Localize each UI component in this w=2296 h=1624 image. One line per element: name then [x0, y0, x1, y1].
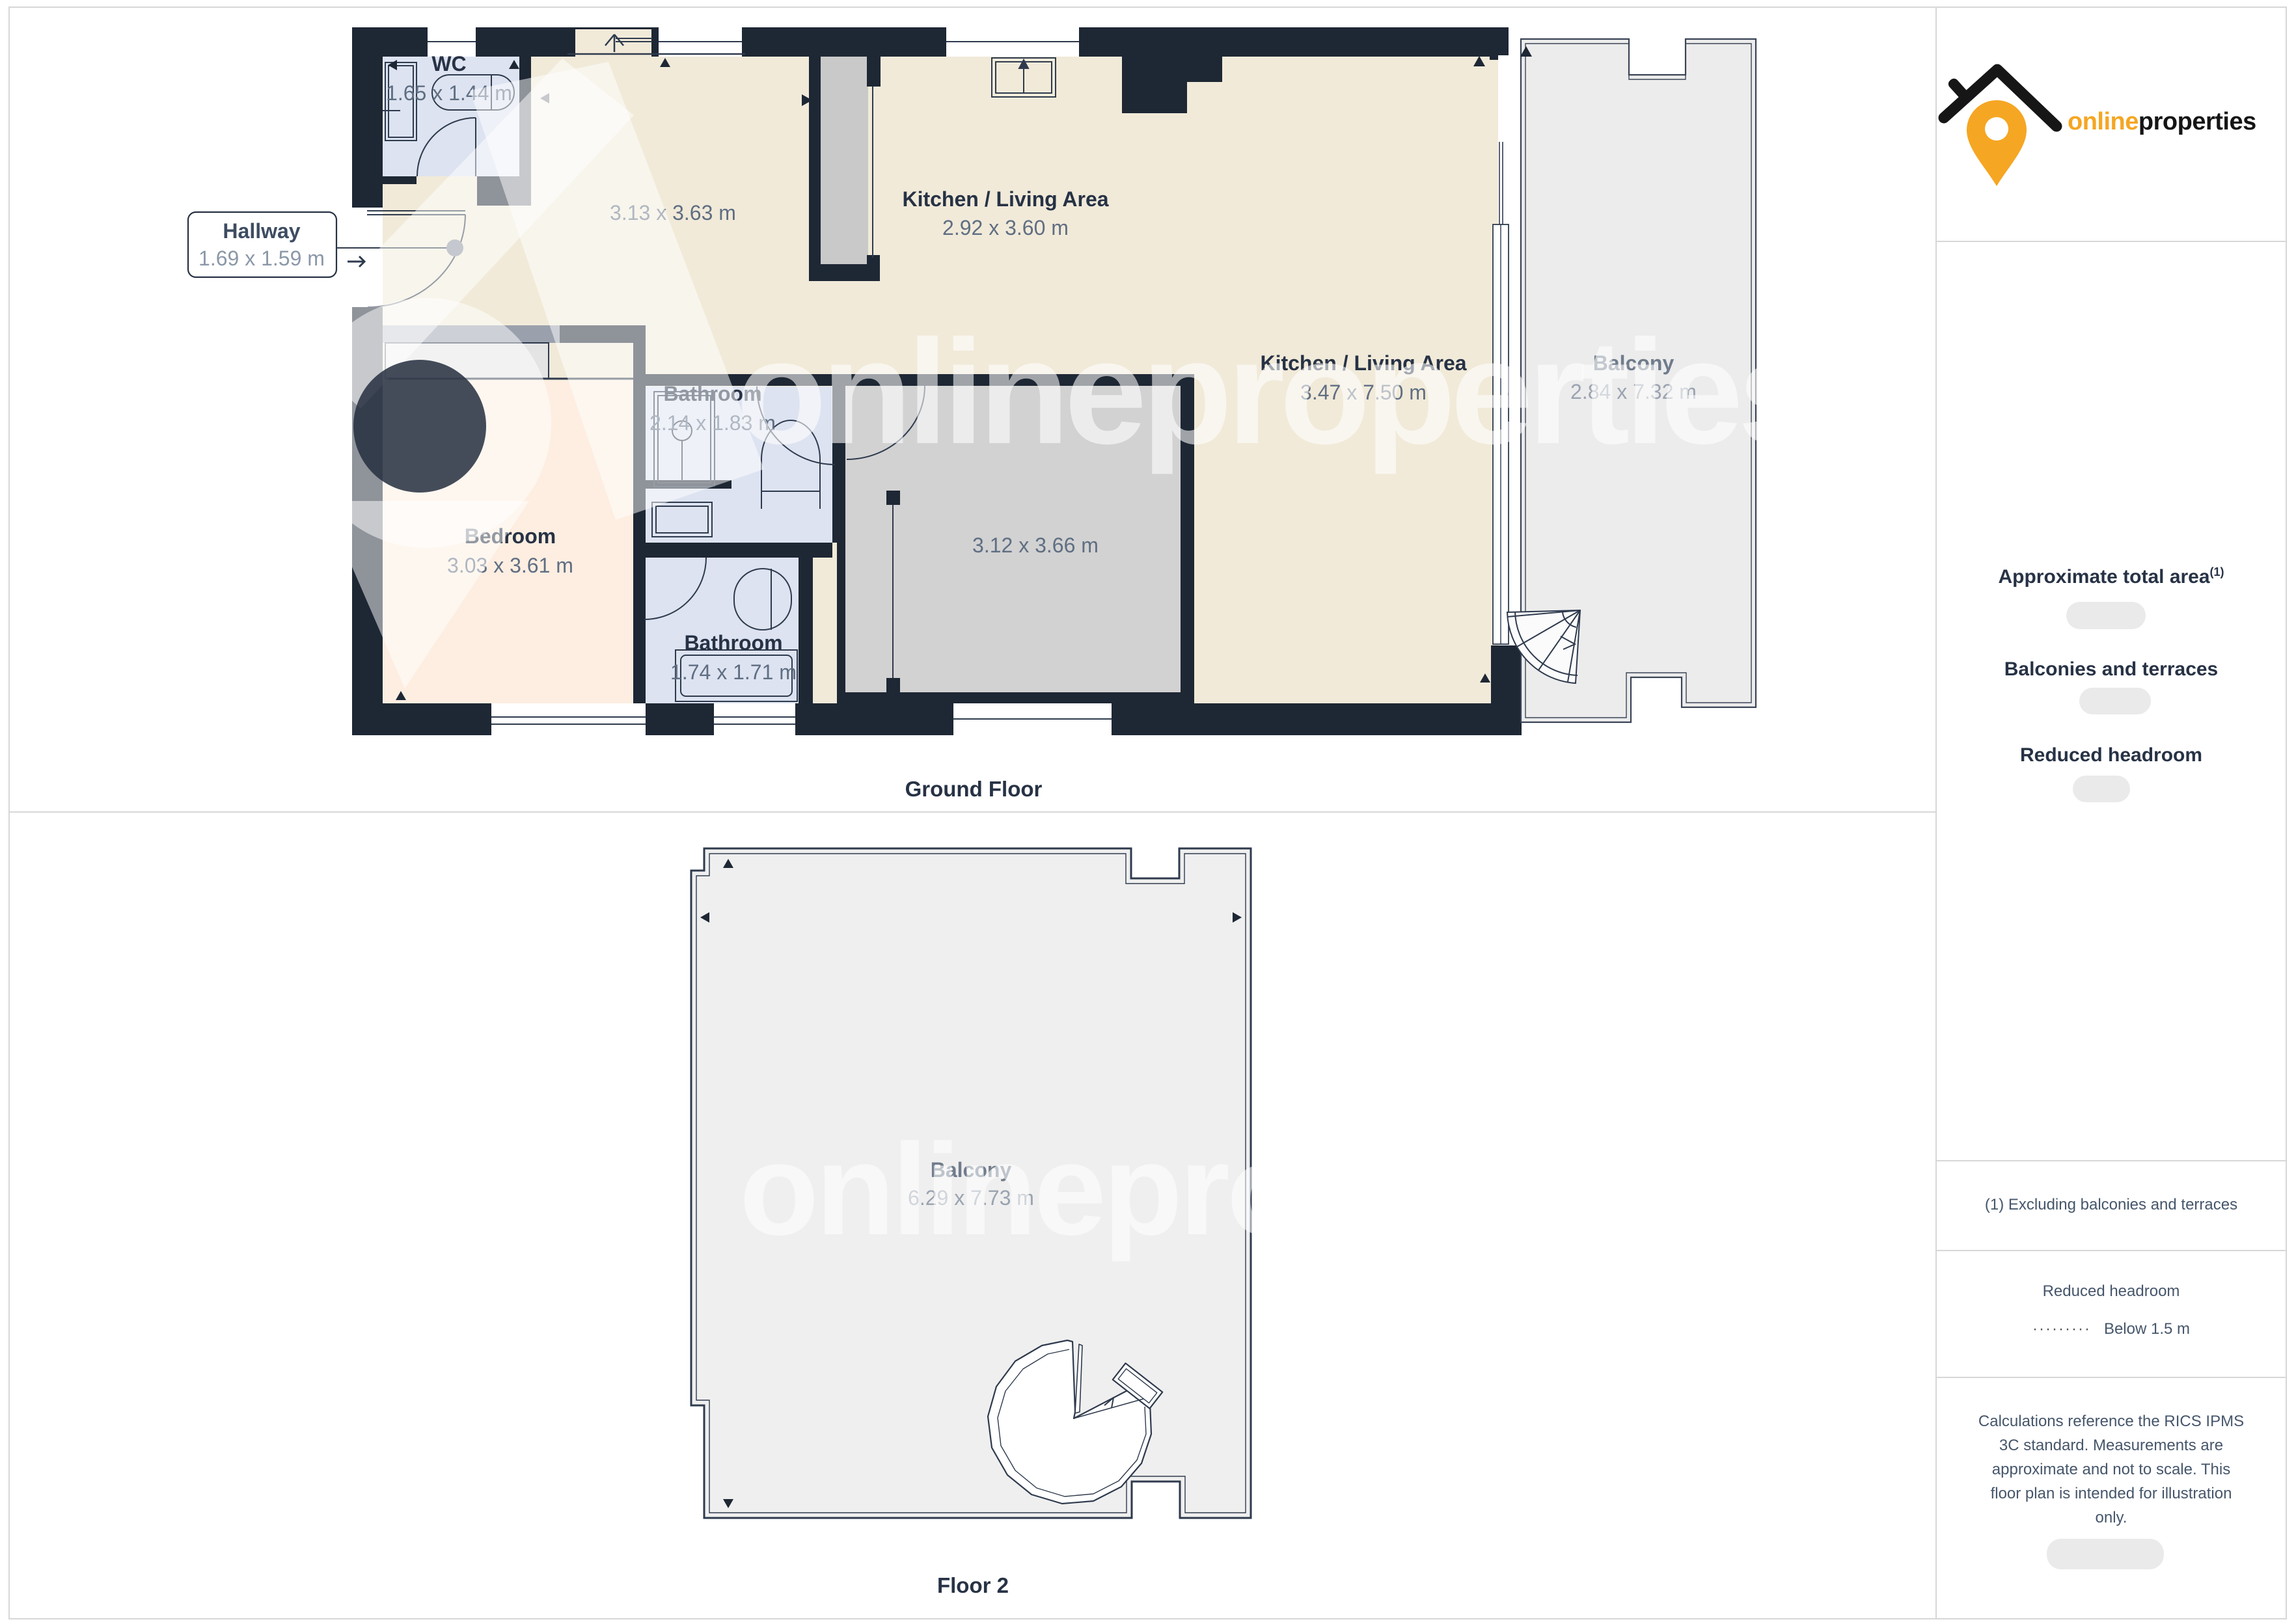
svg-text:Bathroom: Bathroom	[684, 631, 782, 655]
svg-text:WC: WC	[431, 52, 466, 75]
svg-text:Floor 2: Floor 2	[937, 1573, 1009, 1597]
svg-text:onlineproperties: onlineproperties	[739, 1117, 1707, 1262]
svg-text:Hallway: Hallway	[223, 219, 300, 243]
svg-text:2.92 x 3.60 m: 2.92 x 3.60 m	[942, 216, 1069, 239]
svg-text:onlineproperties: onlineproperties	[736, 310, 1815, 475]
svg-text:1.74 x 1.71 m: 1.74 x 1.71 m	[670, 660, 797, 684]
svg-text:Ground Floor: Ground Floor	[905, 777, 1043, 801]
svg-text:1.69 x 1.59 m: 1.69 x 1.59 m	[198, 247, 325, 270]
svg-text:Kitchen / Living Area: Kitchen / Living Area	[902, 187, 1108, 211]
svg-text:3.12 x 3.66 m: 3.12 x 3.66 m	[972, 534, 1099, 557]
